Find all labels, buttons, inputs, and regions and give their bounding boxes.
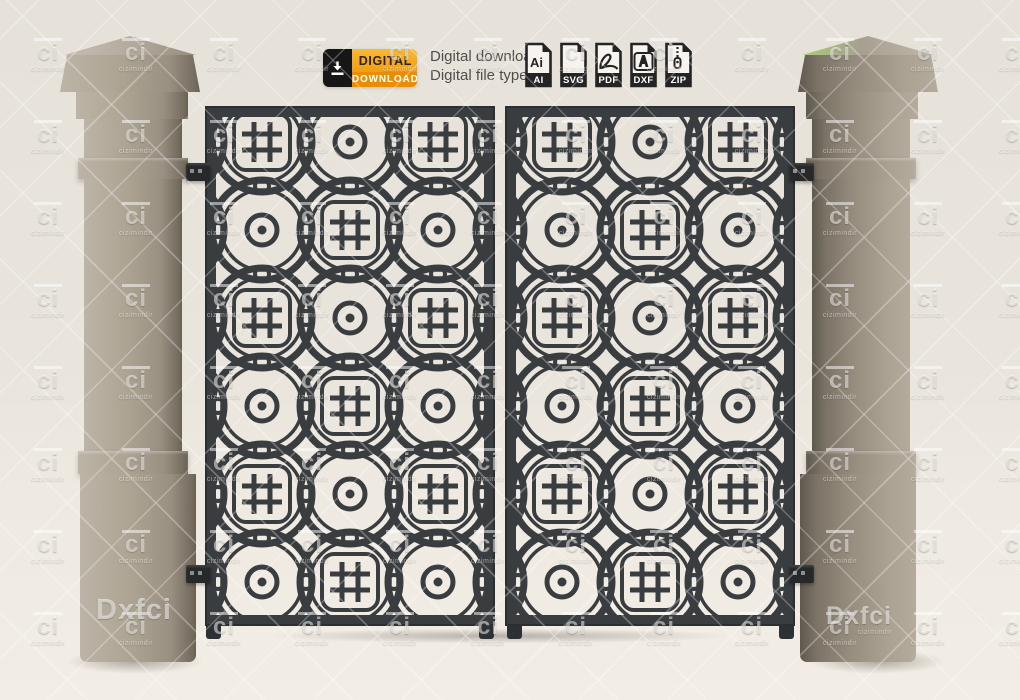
watermark-tile: cicizimindir: [988, 120, 1020, 155]
watermark-tile: cicizimindir: [988, 612, 1020, 647]
gate-left-panel: [205, 106, 495, 626]
badge-download-label: DOWNLOAD: [352, 72, 417, 87]
zip-file-icon: ZIP: [663, 42, 694, 88]
watermark-tile: cicizimindir: [988, 366, 1020, 401]
svg-text:DXF: DXF: [634, 75, 654, 86]
pillar-right-cap-pyramid: [802, 36, 934, 55]
watermark-tile: cicizimindir: [20, 366, 76, 401]
pillar-left-collar: [76, 92, 188, 119]
corner-watermark-text: Dxfci: [96, 594, 172, 626]
watermark-tile: cicizimindir: [988, 448, 1020, 483]
badge-digital-label: DIGITAL: [352, 49, 417, 72]
hinge-bottom-right: [789, 565, 814, 583]
product-image-scene: DIGITAL DOWNLOAD Digital download Digita…: [0, 0, 1020, 700]
svg-text:ZIP: ZIP: [671, 75, 687, 86]
svg-text:AI: AI: [533, 75, 543, 86]
pillar-right-cap-slab: [798, 55, 938, 92]
pillar-right-lower-band: [806, 451, 916, 474]
pillar-left-cap-pyramid: [64, 36, 196, 55]
watermark-tile: cicizimindir: [988, 530, 1020, 565]
corner-watermark-subtext: cizimindir: [826, 629, 892, 636]
pillar-left-upper-band: [78, 158, 188, 179]
corner-watermark-text: Dxfci: [826, 602, 892, 630]
watermark-tile: cicizimindir: [20, 284, 76, 319]
pillar-right-upper-band: [806, 158, 916, 179]
gate-ground-shadow: [192, 628, 808, 648]
gate-right-panel: [505, 106, 795, 626]
pillar-left-base: [80, 474, 196, 662]
pillar-left-cap-slab: [60, 55, 200, 92]
pillar-right-collar: [806, 92, 918, 119]
pillar-left-lower-band: [78, 451, 188, 474]
watermark-tile: cicizimindir: [988, 284, 1020, 319]
watermark-tile: cicizimindir: [20, 530, 76, 565]
digital-download-badge: DIGITAL DOWNLOAD: [323, 49, 417, 87]
hinge-bottom-left: [186, 565, 211, 583]
corner-watermark-left: Dxfci: [96, 594, 172, 627]
watermark-tile: cicizimindir: [20, 202, 76, 237]
gate-left-lattice: [215, 115, 485, 617]
watermark-tile: cicizimindir: [196, 38, 252, 73]
pillar-left-neck: [84, 119, 182, 162]
hinge-top-right: [789, 163, 814, 181]
dxf-file-icon: DXF: [628, 42, 659, 88]
corner-watermark-right: Dxfci cizimindir: [826, 602, 892, 636]
watermark-tile: cicizimindir: [20, 612, 76, 647]
watermark-tile: cicizimindir: [20, 448, 76, 483]
watermark-tile: cicizimindir: [988, 202, 1020, 237]
hinge-top-left: [186, 163, 211, 181]
ai-file-icon: Ai AI: [523, 42, 554, 88]
svg-text:PDF: PDF: [599, 75, 619, 86]
svg-text:Ai: Ai: [530, 55, 543, 70]
watermark-tile: cicizimindir: [988, 38, 1020, 73]
svg-text:SVG: SVG: [563, 75, 584, 86]
pillar-right-neck: [812, 119, 910, 162]
download-icon: [323, 49, 352, 87]
badge-text: DIGITAL DOWNLOAD: [352, 49, 417, 87]
pillar-left-shaft: [84, 179, 182, 455]
file-type-icons: Ai AI SVG PDF DXF: [523, 42, 694, 88]
watermark-tile: cicizimindir: [20, 120, 76, 155]
watermark-tile: cicizimindir: [724, 38, 780, 73]
pdf-file-icon: PDF: [593, 42, 624, 88]
gate-right-lattice: [515, 115, 785, 617]
pillar-right-shaft: [812, 179, 910, 455]
svg-file-icon: SVG: [558, 42, 589, 88]
